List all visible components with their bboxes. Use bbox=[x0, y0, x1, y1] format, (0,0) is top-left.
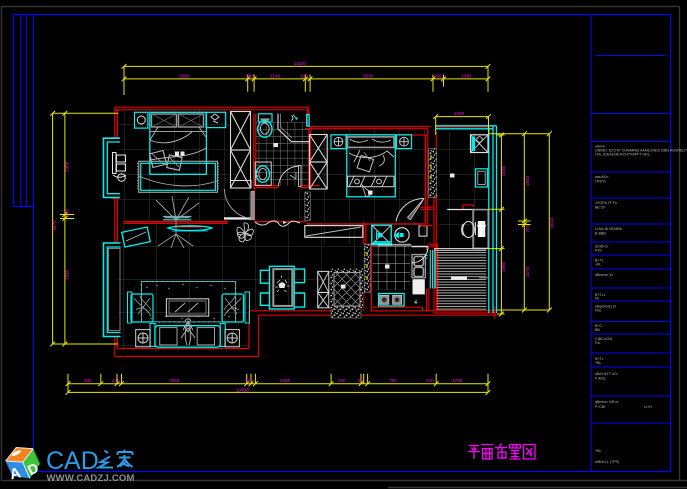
svg-text:150: 150 bbox=[65, 209, 70, 217]
svg-text:750: 750 bbox=[389, 378, 397, 383]
svg-text:300: 300 bbox=[245, 378, 253, 383]
svg-text:1780: 1780 bbox=[452, 378, 463, 383]
svg-text:FBL: FBL bbox=[595, 309, 602, 313]
svg-text:340: 340 bbox=[338, 378, 346, 383]
svg-text:+BL: +BL bbox=[595, 449, 602, 453]
svg-text:950: 950 bbox=[246, 73, 254, 78]
svg-text:3270: 3270 bbox=[525, 266, 530, 277]
svg-text:1140: 1140 bbox=[270, 73, 280, 78]
svg-text:7560: 7560 bbox=[169, 378, 180, 383]
svg-text:FVb: FVb bbox=[595, 249, 602, 253]
svg-text:750: 750 bbox=[525, 224, 530, 232]
svg-text:240: 240 bbox=[434, 73, 442, 78]
svg-text:I NL JDEAZOE RCHTXAPFT HDL: I NL JDEAZOE RCHTXAPFT HDL bbox=[595, 153, 650, 157]
svg-text:2540: 2540 bbox=[501, 165, 506, 176]
svg-text:Fb: Fb bbox=[595, 297, 599, 301]
svg-text:5970: 5970 bbox=[52, 220, 57, 231]
svg-text:2360: 2360 bbox=[501, 261, 506, 272]
svg-text:LLMu BI BCMBb: LLMu BI BCMBb bbox=[595, 227, 622, 231]
svg-text:I RD%: I RD% bbox=[595, 180, 606, 184]
svg-text:F+CBr: F+CBr bbox=[595, 405, 606, 409]
svg-text:BE CF: BE CF bbox=[595, 206, 606, 210]
svg-text:1630: 1630 bbox=[65, 269, 70, 280]
svg-text:wkuACn: wkuACn bbox=[595, 175, 608, 179]
svg-text:+FL: +FL bbox=[595, 263, 601, 267]
svg-text:dBmmm )rr: dBmmm )rr bbox=[595, 273, 614, 277]
svg-text:2440: 2440 bbox=[280, 378, 291, 383]
svg-text:mBHLLL (TPP): mBHLLL (TPP) bbox=[595, 460, 619, 464]
svg-text:120: 120 bbox=[300, 73, 308, 78]
svg-text:1500: 1500 bbox=[454, 111, 465, 116]
svg-text:1080: 1080 bbox=[461, 73, 472, 78]
svg-text:uBd HLTT uCr: uBd HLTT uCr bbox=[595, 372, 619, 376]
svg-text:BB: BB bbox=[595, 328, 600, 332]
svg-text:5610: 5610 bbox=[549, 217, 554, 228]
svg-text:11100: 11100 bbox=[294, 61, 307, 66]
svg-text:F+BCL: F+BCL bbox=[595, 377, 606, 381]
svg-text:3530: 3530 bbox=[363, 73, 374, 78]
svg-text:Fur: Fur bbox=[595, 341, 601, 345]
svg-text:2840: 2840 bbox=[525, 175, 530, 186]
svg-text:10400: 10400 bbox=[236, 387, 249, 392]
svg-text:WWW.CADZJ.COM: WWW.CADZJ.COM bbox=[47, 473, 135, 484]
svg-text:B-BBB: B-BBB bbox=[595, 232, 606, 236]
svg-text:+BL: +BL bbox=[595, 361, 602, 365]
svg-text:qBmmrr %B ur: qBmmrr %B ur bbox=[595, 400, 619, 404]
svg-text:240: 240 bbox=[426, 378, 434, 383]
svg-text:65: 65 bbox=[358, 378, 364, 383]
svg-text:Lr+H: Lr+H bbox=[644, 405, 652, 409]
svg-text:640: 640 bbox=[84, 378, 92, 383]
svg-text:CAD: CAD bbox=[46, 447, 99, 475]
svg-text:2450: 2450 bbox=[65, 161, 70, 172]
svg-text:1900: 1900 bbox=[179, 73, 190, 78]
svg-text:Jr*OPa 7F Fu: Jr*OPa 7F Fu bbox=[595, 201, 617, 205]
svg-text:240: 240 bbox=[112, 378, 120, 383]
